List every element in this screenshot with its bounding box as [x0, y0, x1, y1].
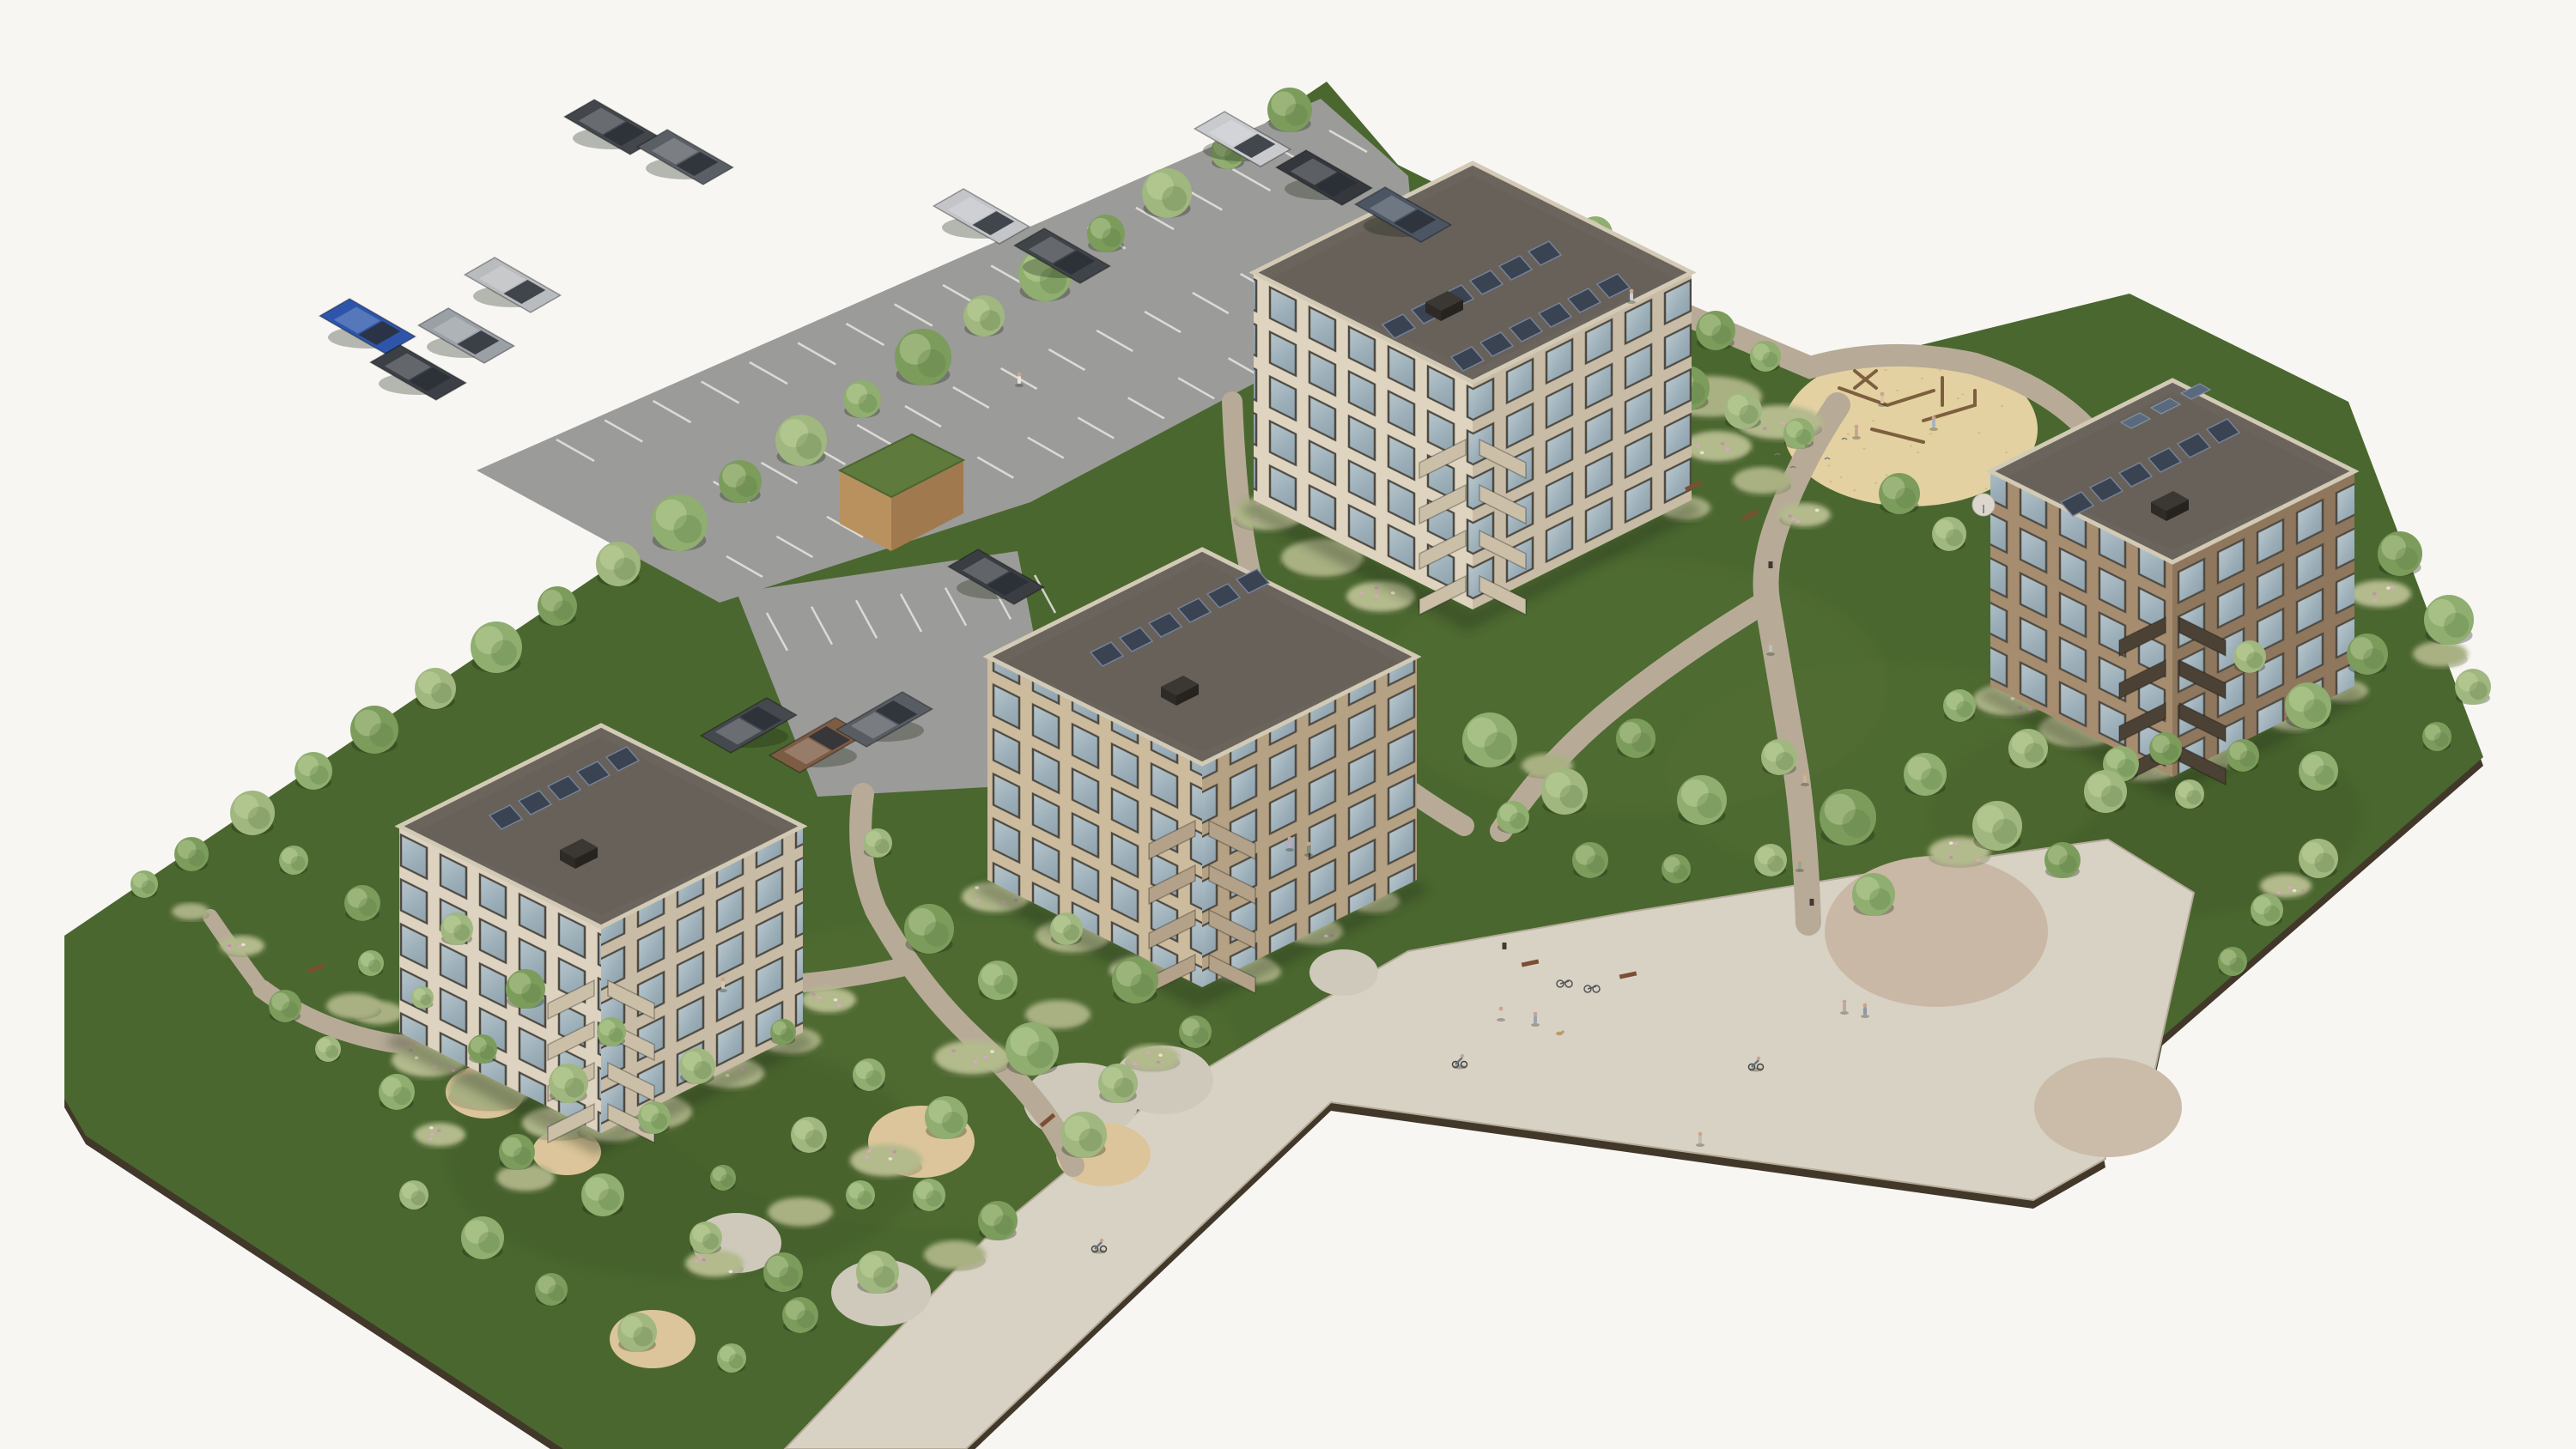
tree [1142, 168, 1192, 218]
tree [1761, 739, 1797, 775]
tree [1050, 912, 1083, 945]
tree [471, 621, 522, 673]
tree [1696, 311, 1735, 350]
car [933, 189, 1029, 244]
tree [2347, 634, 2388, 675]
tree [843, 380, 881, 418]
tree [856, 1251, 899, 1294]
shrub-bed [1733, 467, 1791, 496]
tree [581, 1173, 624, 1216]
tree [1541, 768, 1588, 815]
tree [269, 990, 301, 1022]
tree [461, 1216, 504, 1259]
shrub-bed [768, 1197, 833, 1228]
tree [770, 1019, 796, 1045]
shrub-bed [1683, 431, 1752, 464]
tree [1462, 712, 1517, 767]
tree [597, 1017, 626, 1046]
shrub-bed [2349, 580, 2411, 609]
car [465, 258, 560, 312]
tree [1724, 391, 1762, 429]
tree [506, 969, 545, 1009]
shrub-bed [801, 987, 856, 1015]
shrub-bed [924, 1240, 986, 1271]
shrub-bed [1779, 503, 1831, 528]
tree [2285, 682, 2331, 729]
shrub-bed [414, 1123, 465, 1148]
tree [2218, 947, 2247, 976]
tree [2084, 770, 2127, 813]
tree [2227, 739, 2259, 772]
tree [1783, 418, 1814, 449]
tree [1820, 789, 1876, 846]
tree [2149, 732, 2182, 765]
tree [174, 837, 209, 871]
rendering-canvas [0, 0, 2576, 1449]
tree [358, 950, 384, 976]
tree [230, 791, 275, 835]
tree [1087, 215, 1125, 252]
tree [1616, 718, 1656, 758]
tree [468, 1034, 497, 1064]
tree [1060, 1112, 1107, 1158]
tree [1754, 844, 1787, 876]
tree [1572, 842, 1608, 878]
tree [295, 752, 332, 790]
tree [415, 668, 456, 709]
tree [863, 828, 892, 858]
tree [399, 1180, 428, 1210]
tree [978, 1201, 1018, 1240]
tree [1677, 775, 1727, 825]
tree [710, 1165, 736, 1191]
tree [1879, 473, 1920, 514]
tree [2422, 722, 2451, 751]
tree [1497, 801, 1529, 834]
car [637, 130, 732, 185]
tree [895, 329, 951, 385]
tree [1904, 753, 1947, 796]
shrub-bed [326, 993, 381, 1021]
tree [791, 1117, 827, 1153]
tree [2378, 531, 2422, 576]
tree [499, 1134, 535, 1170]
tree [638, 1101, 671, 1134]
shrub-bed [220, 936, 264, 957]
tree [2424, 595, 2474, 645]
shrub-bed [1125, 1045, 1180, 1072]
shrub-bed [2413, 641, 2468, 669]
tree [782, 1297, 818, 1333]
tree [1972, 801, 2022, 851]
tree [775, 415, 827, 466]
tree [315, 1036, 341, 1062]
tree [963, 295, 1005, 336]
tree [1267, 88, 1312, 132]
tree [344, 885, 380, 921]
tree [978, 961, 1018, 1000]
tree [1098, 1064, 1138, 1103]
tree [904, 904, 954, 954]
tree [617, 1313, 657, 1352]
tree [131, 870, 158, 898]
site-plan-rendering [0, 0, 2576, 1449]
tree [717, 1343, 746, 1373]
tree [2044, 842, 2081, 878]
tree [2175, 779, 2204, 809]
tree [2299, 839, 2338, 878]
tree [535, 1273, 568, 1306]
tree [853, 1058, 885, 1091]
tree [690, 1222, 722, 1254]
tree [1943, 689, 1976, 722]
tree [846, 1180, 875, 1210]
tree [913, 1179, 945, 1211]
shrub-bed [172, 903, 210, 921]
tree [596, 542, 641, 586]
tree [2233, 640, 2266, 673]
tree [1852, 873, 1895, 916]
tree [538, 586, 577, 626]
shrub-bed [685, 1250, 744, 1279]
tree [2299, 751, 2338, 791]
tree [679, 1048, 715, 1084]
tree [2455, 669, 2491, 705]
tree [1112, 957, 1158, 1003]
tree [1005, 1022, 1059, 1076]
tree [350, 706, 398, 754]
tree [1662, 854, 1691, 883]
tree [1179, 1016, 1212, 1048]
tree [379, 1074, 415, 1110]
tree [2251, 894, 2283, 926]
tree [440, 912, 473, 945]
tree [719, 460, 762, 503]
car [418, 308, 513, 363]
shrub-bed [850, 1144, 922, 1179]
tree [763, 1252, 803, 1292]
tree [411, 986, 434, 1009]
tree [1750, 341, 1781, 372]
shrub-bed [934, 1040, 1010, 1076]
tree [1932, 517, 1966, 551]
tree [279, 846, 308, 875]
tree [925, 1096, 968, 1139]
tree [2008, 729, 2048, 768]
tree [651, 494, 708, 551]
tree [549, 1064, 588, 1103]
